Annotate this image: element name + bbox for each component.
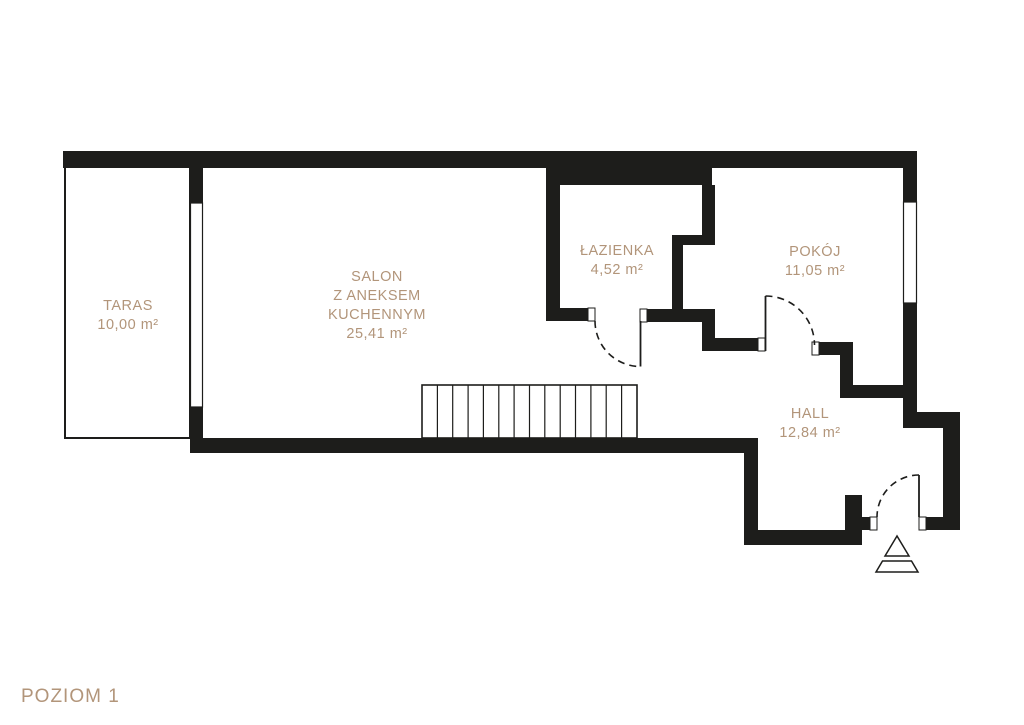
wall-top [63,151,917,168]
wall-hall-bottom [744,530,862,545]
wall-hall-step-vertical [840,355,853,398]
wall-salon-bottom [190,438,758,453]
pokoj-area: 11,05 m² [785,263,845,279]
wall-corridor-vertical [702,321,715,351]
entrance-arrow-base [876,561,918,572]
salon-label-line2: Z ANEKSEM [333,288,421,304]
wall-taras-divider-lower [190,406,203,439]
wall-hall-step-horizontal [853,385,917,398]
wall-lazienka-pokoj-upper [702,185,715,236]
pokoj-window [904,202,917,303]
wall-right-step [903,412,960,428]
pokoj-door-jamb-left [758,338,765,351]
lazienka-label: ŁAZIENKA [580,243,654,259]
wall-right-above-window [903,151,917,203]
wall-salon-lazienka [546,168,560,321]
salon-label-line3: KUCHENNYM [328,307,426,323]
entrance-door-jamb-right [919,517,926,530]
room-salon: SALON Z ANEKSEM KUCHENNYM 25,41 m² [328,269,426,342]
pokoj-label: POKÓJ [789,243,841,260]
entrance-door-arc [877,475,919,517]
lazienka-door-arc [595,321,641,367]
floor-plan-page: TARAS 10,00 m² SALON Z ANEKSEM KUCHENNYM… [0,0,1024,725]
taras-area: 10,00 m² [97,317,158,333]
salon-label-line1: SALON [351,269,403,285]
wall-lazienka-pokoj-step [672,235,715,245]
taras-label: TARAS [103,298,153,314]
salon-area: 25,41 m² [346,326,407,342]
staircase [422,385,637,438]
wall-entrance-stub [845,495,862,530]
lazienka-area: 4,52 m² [591,262,644,278]
wall-lazienka-bottom-right [640,309,715,322]
pokoj-door-arc [766,296,815,345]
wall-right-lower [943,412,960,530]
lazienka-door-jamb-left [588,308,595,321]
lazienka-door-jamb-right [640,309,647,322]
room-hall: HALL 12,84 m² [779,406,840,441]
taras-window [191,203,203,407]
room-pokoj: POKÓJ 11,05 m² [785,243,845,279]
wall-taras-divider-upper [190,168,203,206]
hall-area: 12,84 m² [779,425,840,441]
floor-plan-drawing: TARAS 10,00 m² SALON Z ANEKSEM KUCHENNYM… [0,0,1024,725]
hall-label: HALL [791,406,829,422]
entrance-arrow-icon [876,536,918,572]
wall-lazienka-pokoj-lower [672,245,683,310]
room-lazienka: ŁAZIENKA 4,52 m² [580,243,654,278]
entrance-door-jamb-left [870,517,877,530]
wall-lazienka-top [558,168,712,185]
wall-hall-left [744,450,758,532]
entrance-arrow-top [885,536,909,556]
pokoj-door-jamb-right [812,342,819,355]
floor-title: POZIOM 1 [21,686,120,707]
